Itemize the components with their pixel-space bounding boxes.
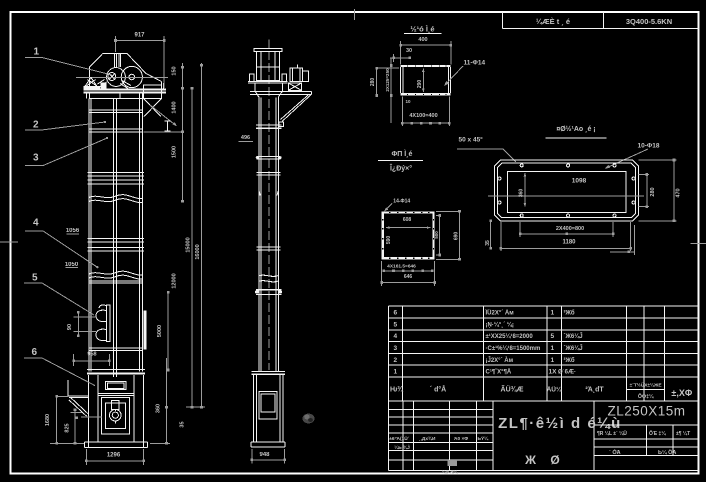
svg-text:646: 646 [404, 274, 413, 280]
svg-text:¤Ø½¹Ао ¸é ¡: ¤Ø½¹Ао ¸é ¡ [556, 125, 595, 133]
svg-text:1056: 1056 [66, 228, 80, 234]
svg-text:¸‚Дх¾И: ¸‚Дх¾И [419, 435, 436, 442]
svg-text:1X: 1X [549, 369, 558, 376]
svg-text:1: 1 [551, 310, 555, 317]
svg-text:´ d°Å: ´ d°Å [430, 385, 446, 394]
svg-text:3: 3 [33, 153, 39, 164]
svg-text:Î¿Ðý×°: Î¿Ðý×° [389, 164, 412, 173]
svg-text:²Ά¸dT: ²Ά¸dT [585, 387, 604, 394]
svg-text:2: 2 [33, 120, 39, 131]
svg-text:35: 35 [485, 240, 491, 246]
svg-text:ÃÜ¾Æ: ÃÜ¾Æ [501, 385, 524, 394]
svg-text:·C±¹%¼¹8=1500mm: ·C±¹%¼¹8=1500mm [486, 345, 541, 352]
svg-text:ÄÜ¼: ÄÜ¼ [547, 385, 562, 394]
svg-text:10-Φ18: 10-Φ18 [638, 143, 660, 150]
svg-text:4: 4 [393, 333, 397, 340]
svg-text:2X125=250: 2X125=250 [385, 68, 390, 92]
svg-text:2: 2 [393, 357, 397, 364]
svg-text:¡Ĵ2X°´ Àм: ¡Ĵ2X°´ Àм [486, 356, 514, 364]
svg-text:90: 90 [67, 324, 73, 330]
svg-text:1180: 1180 [562, 240, 576, 246]
svg-text:4X100=400: 4X100=400 [409, 113, 437, 119]
svg-text:ΦΠ Ì¸é: ΦΠ Ì¸é [392, 149, 413, 158]
svg-text:±¹XX25¼¹8=2000: ±¹XX25¼¹8=2000 [486, 333, 534, 340]
svg-text:Ø´6Æ·: Ø´6Æ· [558, 370, 576, 376]
svg-text:1: 1 [34, 47, 40, 58]
svg-text:½¹ó Ì¸é: ½¹ó Ì¸é [410, 25, 434, 34]
svg-text:5: 5 [551, 333, 555, 340]
svg-text:±´T½ÜX±¼ЖЕ: ±´T½ÜX±¼ЖЕ [630, 382, 663, 389]
svg-text:50 x 45°: 50 x 45° [459, 136, 484, 144]
svg-text:608: 608 [403, 217, 412, 223]
svg-text:¶R ¼L ±´ ¼Ü: ¶R ¼L ±´ ¼Ü [597, 430, 627, 437]
svg-text:Ж: Ж [524, 453, 536, 467]
svg-text:14-Φ14: 14-Φ14 [393, 199, 410, 205]
svg-text:35: 35 [180, 421, 186, 427]
svg-text:280: 280 [370, 78, 376, 87]
svg-text:±,XΦ: ±,XΦ [671, 388, 692, 398]
svg-text:ZL¶·ê½ì d é¼ù: ZL¶·ê½ì d é¼ù [498, 415, 622, 432]
svg-text:C¹¶˝X°¶Å: C¹¶˝X°¶Å [486, 369, 512, 376]
svg-text:´Ж6¼Ĵ: ´Ж6¼Ĵ [564, 344, 584, 352]
svg-text:10: 10 [406, 99, 412, 104]
svg-text:ÔΈ ‡¼: ÔΈ ‡¼ [649, 429, 666, 437]
svg-text:6: 6 [393, 310, 397, 317]
svg-text:690: 690 [454, 232, 460, 241]
svg-text:1098: 1098 [572, 178, 587, 185]
svg-text:280: 280 [650, 187, 656, 196]
svg-text:5000: 5000 [157, 325, 163, 337]
svg-text:³Жб: ³Жб [564, 310, 575, 317]
svg-text:´Ж6¼Ĵ: ´Ж6¼Ĵ [564, 332, 584, 340]
svg-text:¼ÆÈ t ¸ é: ¼ÆÈ t ¸ é [536, 17, 570, 26]
svg-text:360: 360 [156, 404, 162, 413]
svg-text:1: 1 [551, 357, 555, 364]
svg-text:4X161.5=646: 4X161.5=646 [387, 263, 416, 269]
svg-text:2X400=800: 2X400=800 [556, 226, 584, 232]
svg-text:³Жб: ³Жб [564, 357, 575, 364]
svg-text:150: 150 [172, 66, 178, 75]
svg-text:500: 500 [434, 231, 439, 239]
svg-text:3Q400-5.6KN: 3Q400-5.6KN [626, 17, 672, 26]
svg-text:ZL250X15m: ZL250X15m [607, 404, 685, 419]
svg-text:290: 290 [417, 80, 423, 89]
svg-text:470: 470 [676, 188, 682, 197]
svg-text:917: 917 [134, 33, 145, 39]
svg-text:1400: 1400 [172, 101, 178, 113]
svg-text:12000: 12000 [172, 273, 178, 288]
svg-text:1500: 1500 [172, 146, 178, 158]
svg-text:15000: 15000 [186, 237, 192, 252]
svg-text:5: 5 [32, 273, 38, 284]
svg-text:ÔΦ‡¼: ÔΦ‡¼ [638, 392, 654, 400]
svg-text:400: 400 [418, 37, 427, 43]
svg-text:11-Φ14: 11-Φ14 [464, 60, 486, 67]
svg-text:Ά0 ×Φ: Ά0 ×Φ [454, 436, 468, 442]
svg-text:6: 6 [32, 347, 38, 358]
svg-text:1680: 1680 [45, 414, 51, 426]
svg-text:ЬΫ¼: ЬΫ¼ [478, 435, 490, 442]
svg-text:3: 3 [393, 345, 397, 352]
svg-text:4: 4 [33, 218, 39, 229]
svg-text:¼Ø Æ¼: ¼Ø Æ¼ [442, 470, 458, 475]
svg-text:16000: 16000 [195, 244, 201, 259]
svg-text:1: 1 [551, 345, 555, 352]
svg-text:Ƕ¾: Ƕ¾ [390, 386, 404, 394]
svg-text:360: 360 [519, 189, 525, 198]
svg-text:825: 825 [65, 423, 71, 432]
svg-text:Ь¼ ÖΆ: Ь¼ ÖΆ [658, 449, 676, 456]
svg-text:1296: 1296 [107, 453, 121, 459]
svg-text:Ø: Ø [550, 453, 559, 467]
svg-text:±¶ ¼T: ±¶ ¼T [676, 430, 690, 437]
svg-text:´ ÓΆ: ´ ÓΆ [609, 448, 621, 456]
svg-text:958: 958 [87, 351, 96, 357]
svg-text:30: 30 [406, 48, 412, 54]
svg-text:±6°Ά(1Ü´: ±6°Ά(1Ü´ [389, 435, 409, 442]
svg-text:590: 590 [386, 236, 392, 245]
svg-text:ÏÜ2X°´ Àм: ÏÜ2X°´ Àм [485, 310, 515, 317]
svg-text:1: 1 [393, 369, 397, 376]
svg-text:5: 5 [393, 321, 397, 328]
svg-text:948: 948 [259, 452, 270, 458]
svg-text:496: 496 [241, 135, 250, 141]
svg-text:¡Ņ·¼°¸´ ¼¡: ¡Ņ·¼°¸´ ¼¡ [486, 321, 514, 328]
